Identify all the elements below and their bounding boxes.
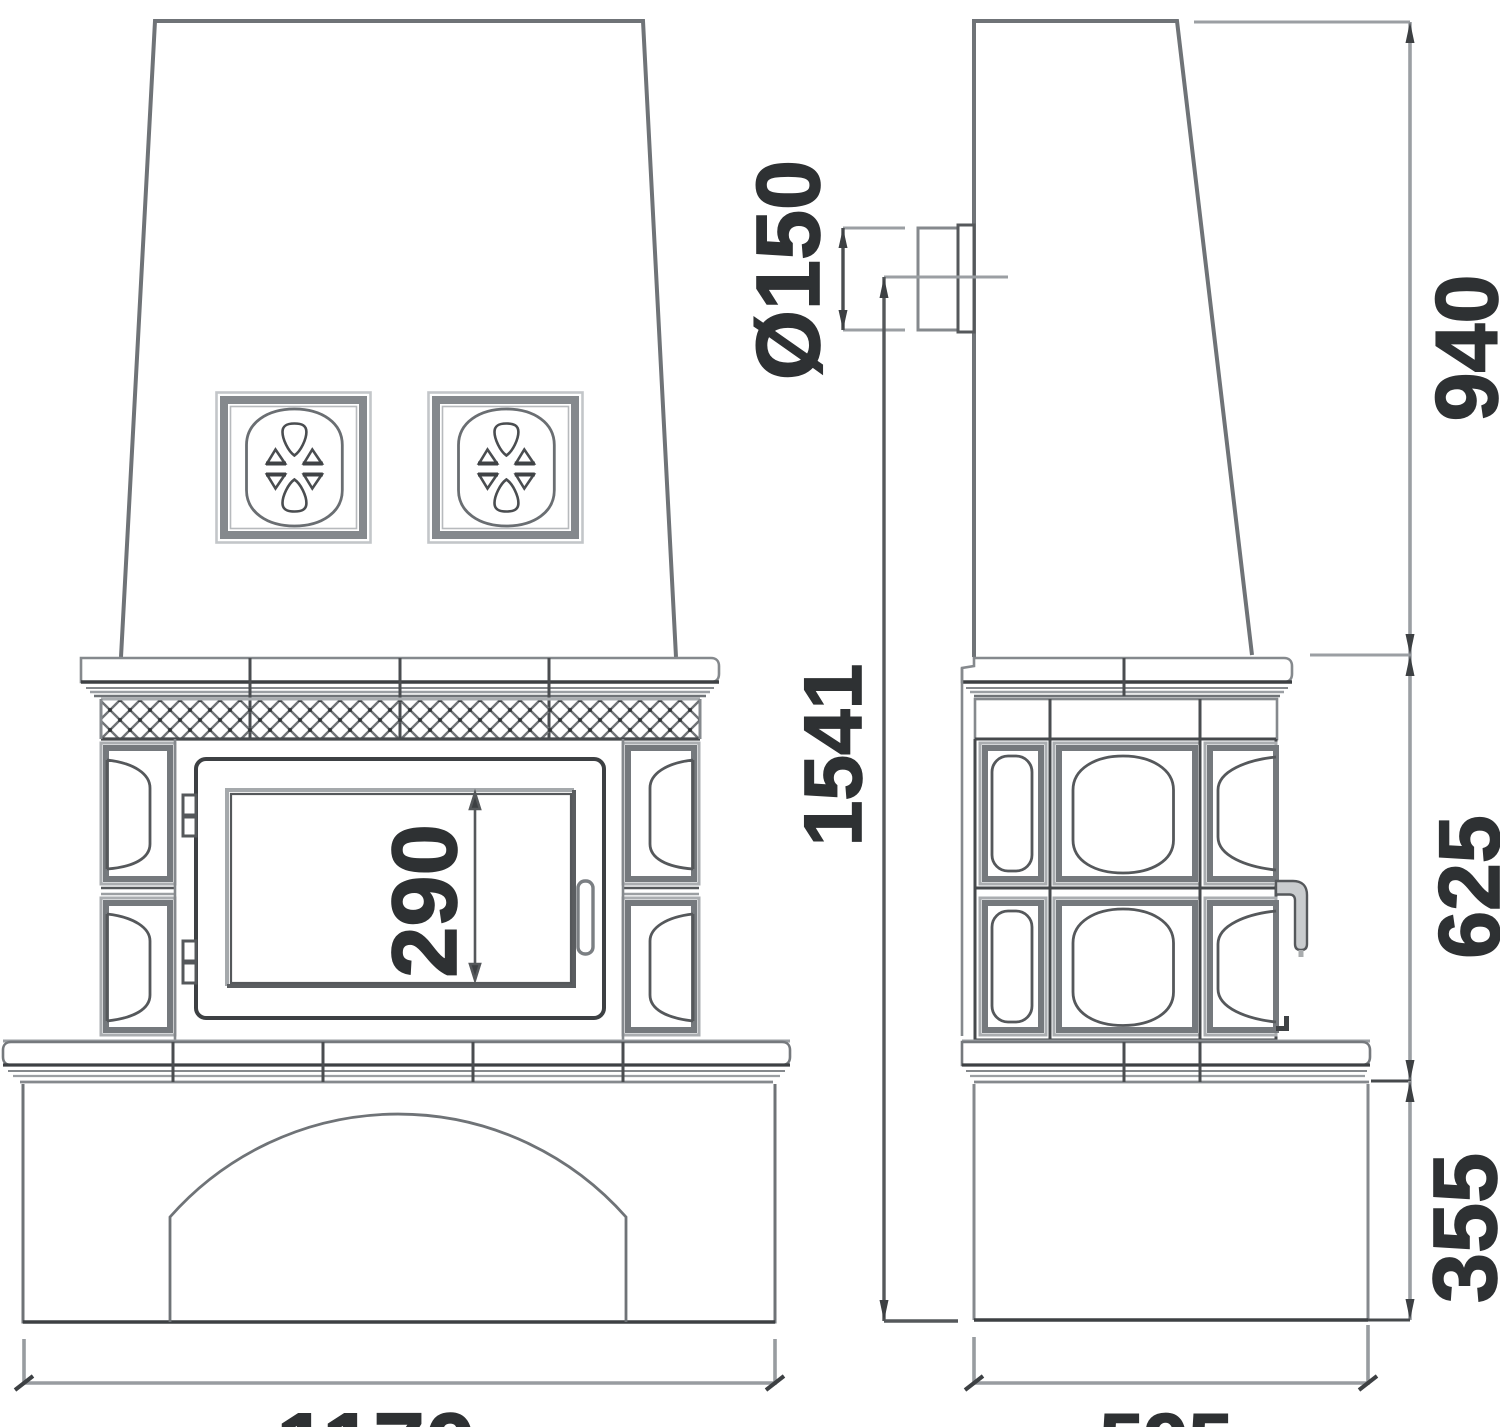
svg-text:290: 290: [374, 824, 476, 978]
svg-text:625: 625: [1422, 815, 1500, 959]
svg-text:1170: 1170: [276, 1395, 476, 1427]
svg-text:Ø150: Ø150: [739, 160, 839, 380]
svg-text:1541: 1541: [788, 664, 879, 846]
svg-text:940: 940: [1417, 275, 1500, 422]
svg-text:595: 595: [1099, 1397, 1232, 1427]
svg-text:355: 355: [1416, 1153, 1500, 1303]
